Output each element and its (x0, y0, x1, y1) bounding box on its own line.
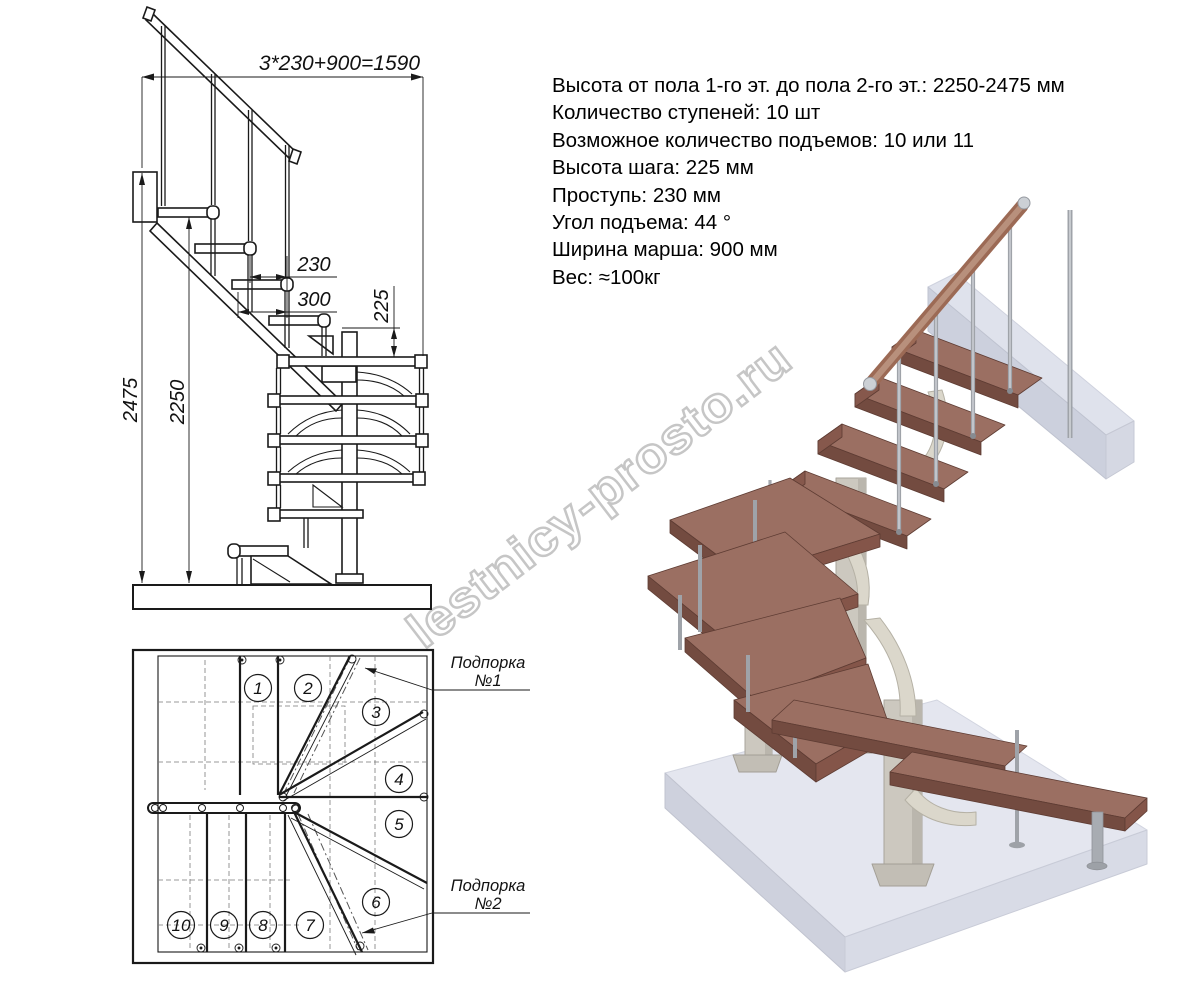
plan-stringer-lines (283, 660, 426, 955)
support-label-1: Подпорка №1 (365, 654, 530, 690)
staircase-drawing-sheet: lestnicy-prosto.ru (0, 0, 1191, 993)
spec-weight: Вес: ≈100кг (552, 264, 1152, 291)
dim-height-max: 2475 (120, 377, 142, 423)
plan-step-marker: 7 (297, 912, 324, 939)
plan-step-marker: 5 (386, 811, 413, 838)
svg-text:10: 10 (172, 916, 191, 935)
elevation-view: 3*230+900=1590 230 300 225 2475 2250 (120, 7, 431, 609)
svg-text:Подпорка: Подпорка (451, 877, 526, 895)
plan-view: 1 2 3 4 5 6 7 8 9 10 Подпорка №1 Подпорк… (133, 650, 530, 963)
spec-floor-height: Высота от пола 1-го эт. до пола 2-го эт.… (552, 72, 1152, 99)
plan-step-markers: 1 2 3 4 5 6 7 8 9 10 (168, 675, 413, 939)
dim-height-min: 2250 (167, 380, 189, 426)
plan-step-marker: 10 (168, 912, 195, 939)
svg-text:7: 7 (305, 916, 315, 935)
svg-text:6: 6 (371, 893, 381, 912)
support-leg-3d (1092, 812, 1103, 864)
support-label-2: Подпорка №2 (362, 877, 530, 934)
handrail-ferrule-3d (864, 378, 877, 391)
spec-rise-count: Возможное количество подъемов: 10 или 11 (552, 127, 1152, 154)
elevation-steps (158, 206, 330, 356)
spec-width: Ширина марша: 900 мм (552, 236, 1152, 263)
plan-handrail (148, 803, 300, 813)
plan-step-marker: 1 (245, 675, 272, 702)
svg-text:9: 9 (219, 916, 229, 935)
elevation-handrail (143, 7, 301, 164)
svg-text:8: 8 (258, 916, 268, 935)
svg-text:1: 1 (253, 679, 262, 698)
svg-text:4: 4 (394, 770, 403, 789)
spec-step-height: Высота шага: 225 мм (552, 154, 1152, 181)
dim-total-run: 3*230+900=1590 (259, 52, 420, 75)
dim-rise: 225 (371, 288, 393, 323)
spec-angle: Угол подъема: 44 ° (552, 209, 1152, 236)
render-3d (648, 197, 1147, 972)
plan-step-marker: 2 (295, 675, 322, 702)
spec-step-count: Количество ступеней: 10 шт (552, 99, 1152, 126)
svg-text:№2: №2 (474, 895, 501, 913)
dim-tread-depth: 230 (296, 254, 330, 276)
svg-text:3: 3 (371, 703, 381, 722)
elevation-winder-assembly (228, 332, 428, 584)
plan-step-marker: 6 (363, 889, 390, 916)
plan-step-marker: 4 (386, 766, 413, 793)
wall-bracket (133, 172, 157, 222)
floor-slab-elevation (133, 585, 431, 609)
svg-text:2: 2 (302, 679, 313, 698)
svg-text:Подпорка: Подпорка (451, 654, 526, 672)
svg-text:№1: №1 (474, 672, 501, 690)
spec-tread: Проступь: 230 мм (552, 182, 1152, 209)
svg-text:5: 5 (394, 815, 404, 834)
dim-step-width: 300 (297, 289, 330, 311)
plan-step-marker: 3 (363, 699, 390, 726)
specifications-block: Высота от пола 1-го эт. до пола 2-го эт.… (552, 72, 1152, 291)
